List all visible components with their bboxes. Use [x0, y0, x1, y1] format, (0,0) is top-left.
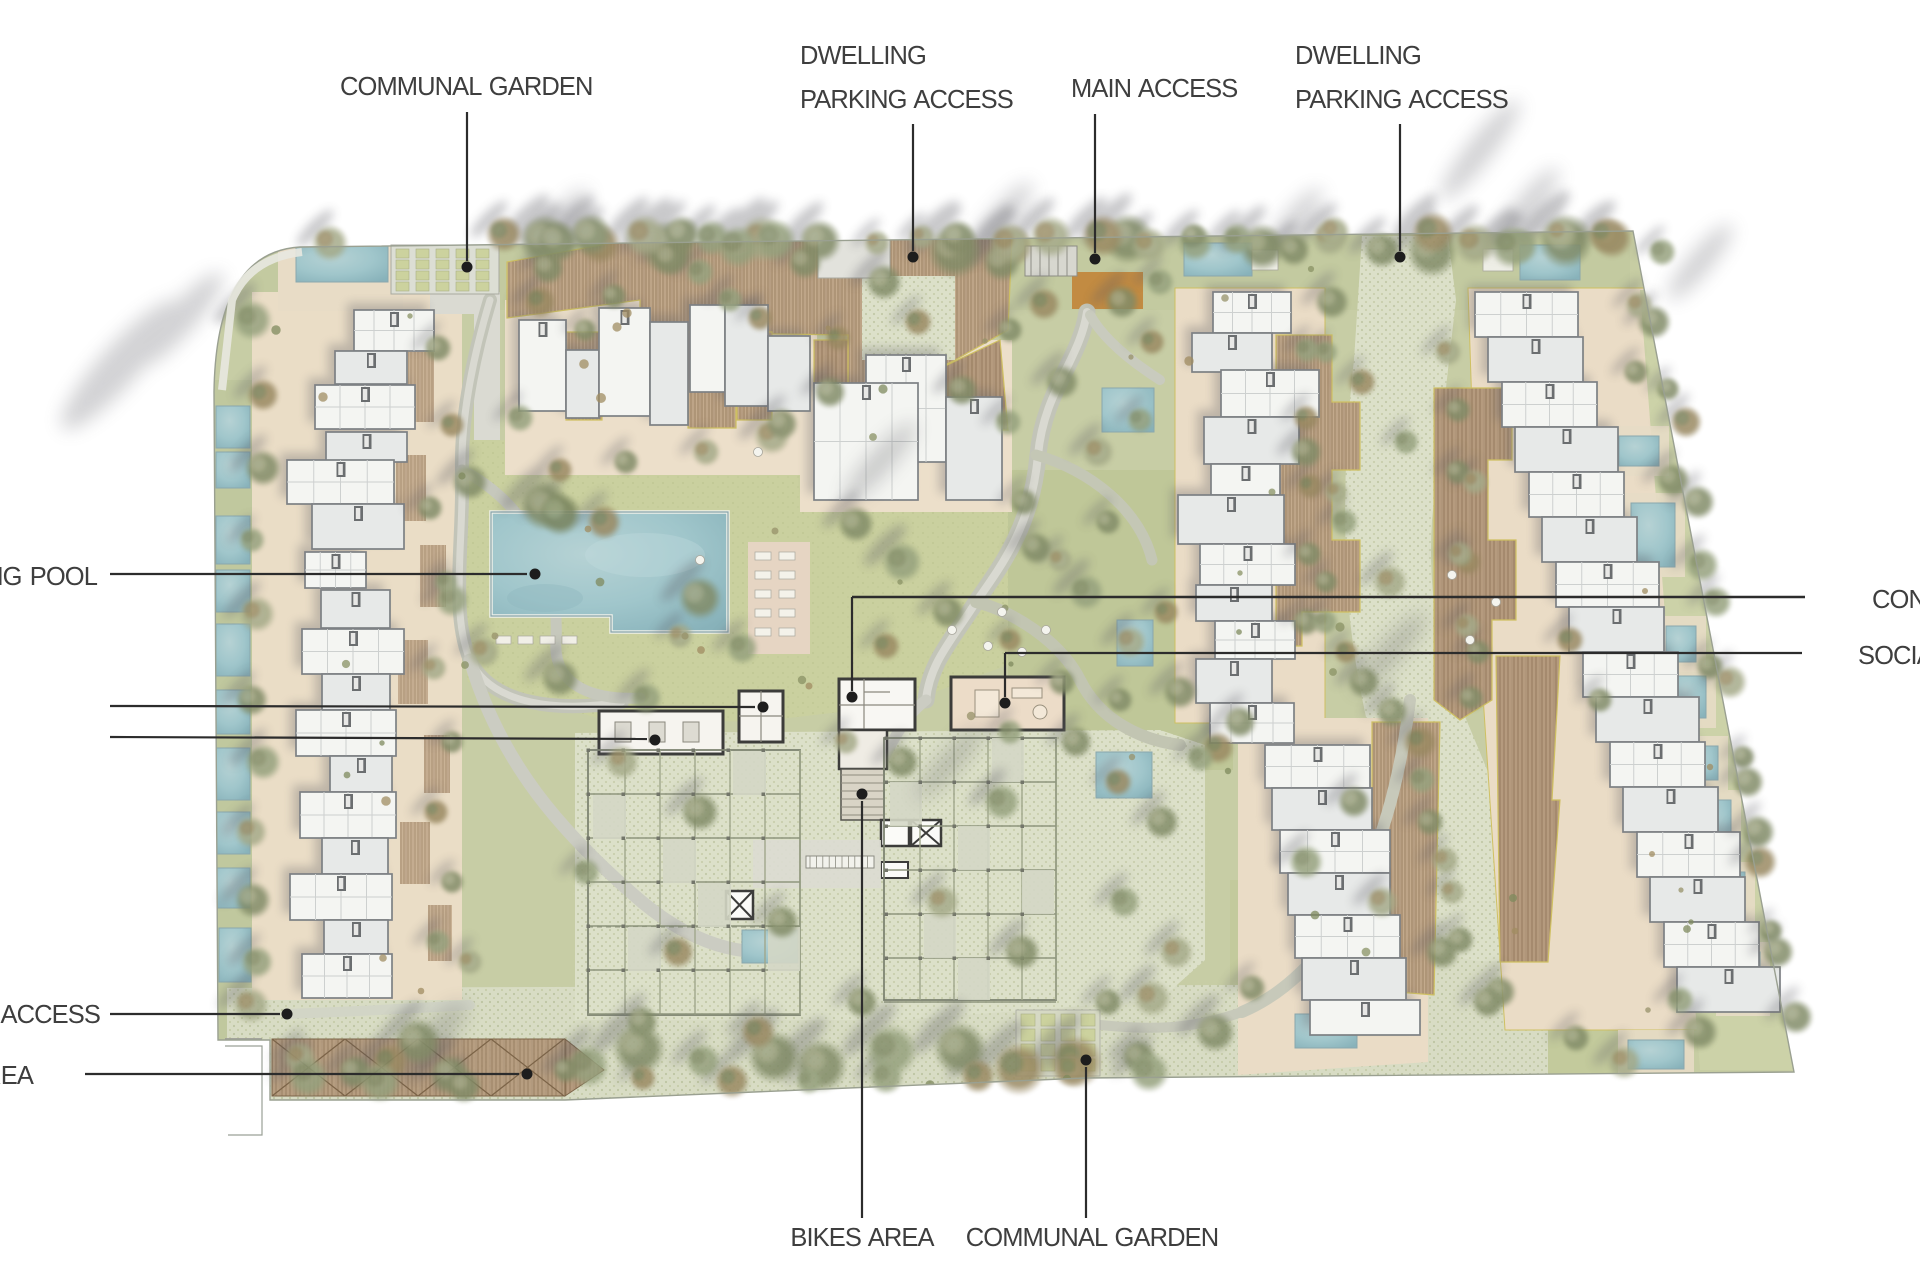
svg-text:BIKES AREA: BIKES AREA — [790, 1224, 934, 1252]
svg-text:PEDESTRIAN ACCESS: PEDESTRIAN ACCESS — [0, 1001, 100, 1029]
svg-text:COMMUNAL GARDEN: COMMUNAL GARDEN — [340, 73, 593, 101]
svg-text:PARKING ACCESS: PARKING ACCESS — [800, 86, 1013, 114]
svg-text:PERGOLA AREA: PERGOLA AREA — [0, 1062, 34, 1090]
svg-text:SWIMMING POOL: SWIMMING POOL — [0, 563, 98, 591]
svg-text:COMMUNAL GARDEN: COMMUNAL GARDEN — [966, 1224, 1219, 1252]
svg-text:MAIN ACCESS: MAIN ACCESS — [1071, 75, 1237, 103]
svg-text:PARKING ACCESS: PARKING ACCESS — [1295, 86, 1508, 114]
svg-text:DWELLING: DWELLING — [1295, 42, 1421, 70]
svg-text:CONCIERGE: CONCIERGE — [1872, 586, 1920, 614]
svg-text:DWELLING: DWELLING — [800, 42, 926, 70]
svg-text:SOCIAL CLUB: SOCIAL CLUB — [1858, 642, 1920, 670]
